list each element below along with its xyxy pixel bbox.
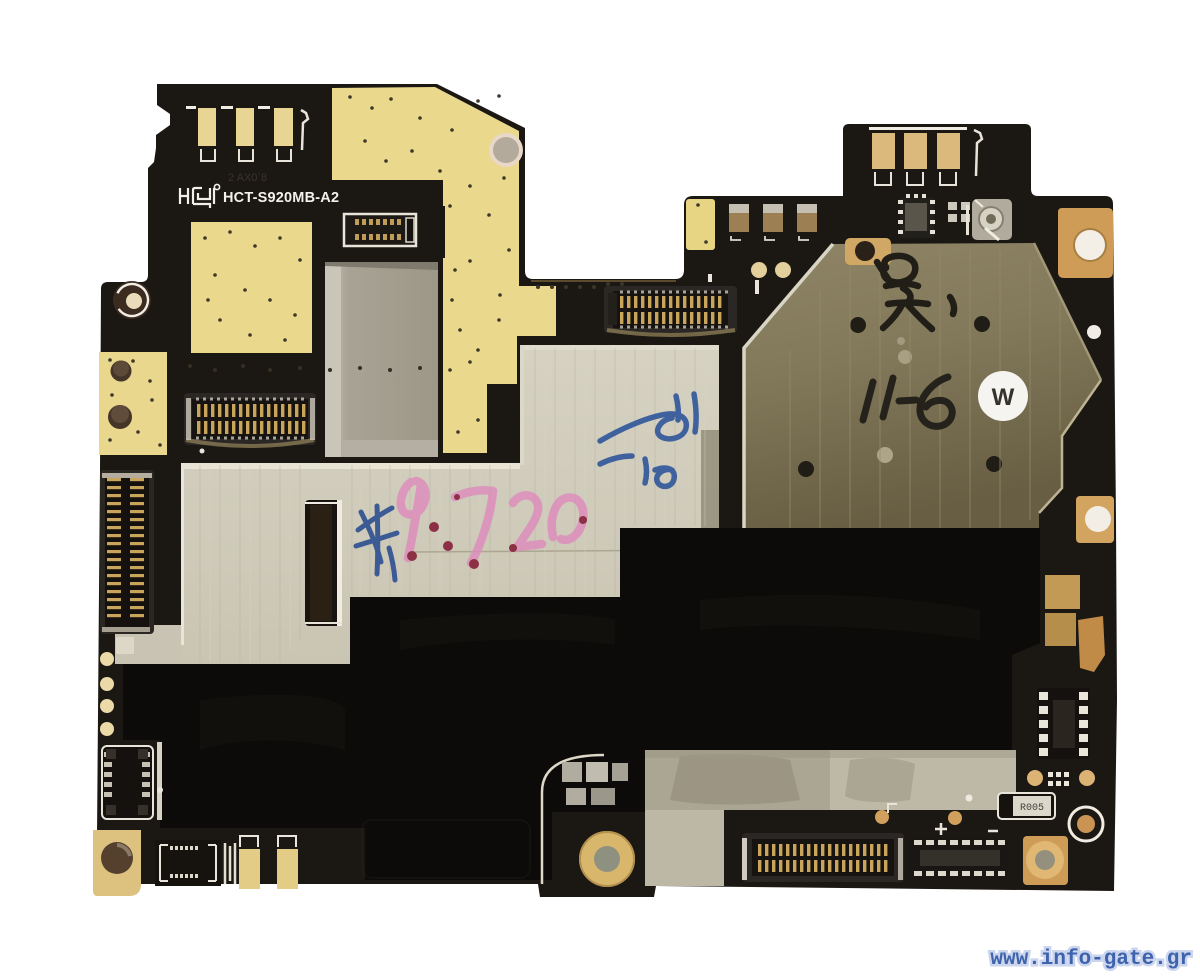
svg-text:www.info-gate.gr: www.info-gate.gr bbox=[990, 948, 1192, 971]
svg-text:2 AΧ0ˈ8: 2 AΧ0ˈ8 bbox=[228, 172, 267, 184]
svg-text:W: W bbox=[992, 384, 1015, 411]
svg-text:R005: R005 bbox=[1020, 803, 1044, 814]
svg-text:HCT-S920MB-A2: HCT-S920MB-A2 bbox=[223, 190, 339, 206]
